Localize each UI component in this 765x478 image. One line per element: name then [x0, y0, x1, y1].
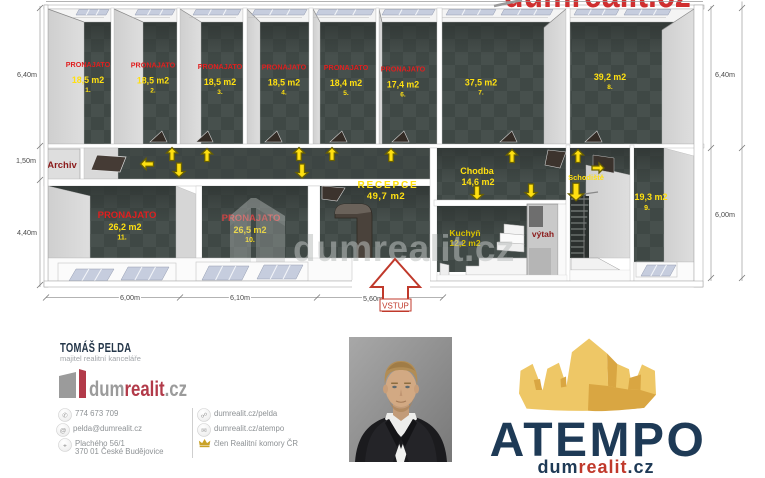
svg-text:Chodba: Chodba: [460, 166, 494, 176]
svg-text:PRONAJATO: PRONAJATO: [324, 63, 369, 72]
svg-text:6.: 6.: [400, 92, 406, 99]
svg-text:3.: 3.: [217, 89, 223, 96]
svg-text:4.: 4.: [281, 90, 287, 97]
svg-text:18,5 m2: 18,5 m2: [72, 75, 104, 85]
svg-text:37,5 m2: 37,5 m2: [465, 78, 497, 88]
svg-text:19,3 m2: 19,3 m2: [634, 192, 667, 202]
svg-text:RECEPCE: RECEPCE: [358, 180, 419, 191]
svg-text:1,50m: 1,50m: [16, 156, 36, 165]
svg-text:9.: 9.: [644, 205, 650, 212]
svg-text:⌖: ⌖: [63, 443, 67, 450]
svg-text:PRONAJATO: PRONAJATO: [98, 210, 157, 221]
svg-text:11.: 11.: [117, 235, 126, 242]
svg-text:☍: ☍: [201, 412, 208, 420]
svg-text:7.: 7.: [478, 90, 484, 97]
svg-text:18,5 m2: 18,5 m2: [204, 77, 236, 87]
svg-text:6,00m: 6,00m: [715, 210, 735, 219]
svg-text:VSTUP: VSTUP: [382, 302, 409, 311]
svg-text:PRONAJATO: PRONAJATO: [66, 60, 111, 69]
svg-text:dumrealit.cz: dumrealit.cz: [504, 0, 691, 16]
svg-text:Archiv: Archiv: [47, 160, 77, 171]
svg-text:dumrealit.cz: dumrealit.cz: [89, 377, 187, 401]
svg-text:✉: ✉: [201, 428, 207, 435]
svg-text:6,00m: 6,00m: [120, 293, 140, 302]
svg-text:6,40m: 6,40m: [17, 70, 37, 79]
svg-text:6,10m: 6,10m: [230, 293, 250, 302]
svg-text:26,2 m2: 26,2 m2: [108, 222, 141, 232]
svg-text:18,5 m2: 18,5 m2: [268, 78, 300, 88]
svg-text:18,5 m2: 18,5 m2: [137, 76, 169, 86]
svg-text:18,4 m2: 18,4 m2: [330, 78, 362, 88]
svg-text:@: @: [60, 428, 67, 435]
svg-text:49,7 m2: 49,7 m2: [367, 191, 405, 202]
svg-text:39,2 m2: 39,2 m2: [594, 72, 626, 82]
svg-text:17,4 m2: 17,4 m2: [387, 80, 419, 90]
svg-text:PRONAJATO: PRONAJATO: [381, 65, 426, 74]
svg-text:PRONAJATO: PRONAJATO: [131, 61, 176, 70]
svg-text:5.: 5.: [343, 90, 349, 97]
svg-text:6,40m: 6,40m: [715, 70, 735, 79]
svg-text:4,40m: 4,40m: [17, 228, 37, 237]
svg-text:✆: ✆: [62, 412, 68, 420]
svg-text:výtah: výtah: [532, 229, 554, 239]
svg-text:1.: 1.: [85, 87, 91, 94]
svg-text:8.: 8.: [607, 84, 613, 91]
svg-text:dumrealit.cz: dumrealit.cz: [293, 228, 515, 269]
svg-text:2.: 2.: [150, 88, 156, 95]
svg-text:PRONAJATO: PRONAJATO: [262, 63, 307, 72]
svg-text:PRONAJATO: PRONAJATO: [198, 62, 243, 71]
